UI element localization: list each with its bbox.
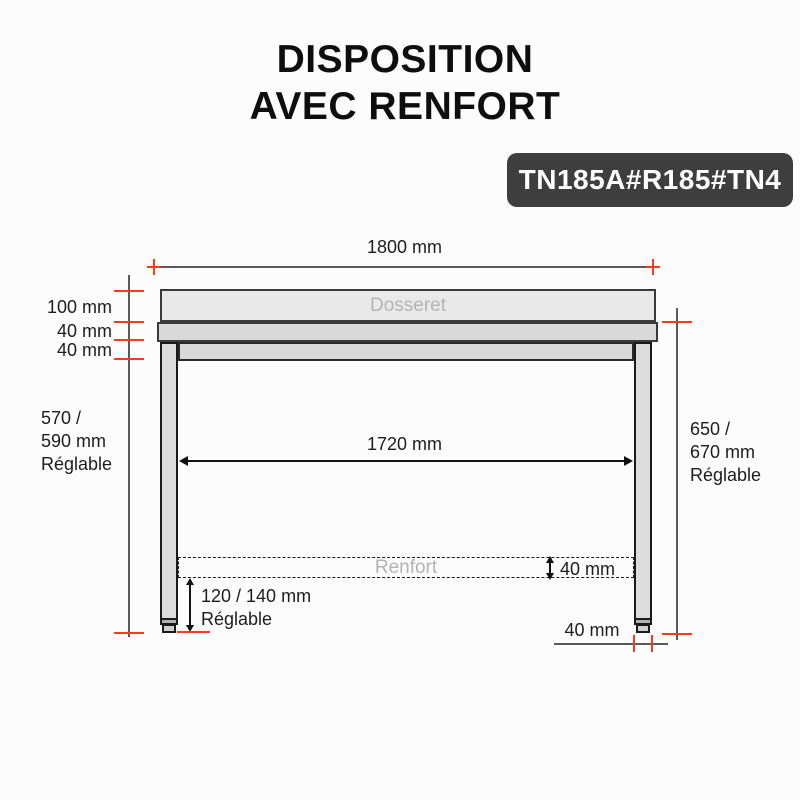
dim-left-clearance-line3: Réglable [41,453,112,476]
backsplash-panel: Dosseret [160,289,656,322]
dim-foot-adjust-line1: 120 / 140 mm [201,585,311,608]
dim-total-width-label: 1800 mm [153,236,656,258]
right-leg [634,342,652,620]
dim-tick [147,266,161,268]
left-leg [160,342,178,620]
frame-rail [178,342,634,361]
dim-reinforcement-thickness-label: 40 mm [560,558,615,580]
dim-tick [177,631,210,633]
dim-tick [114,290,144,292]
worktop-panel [157,322,658,342]
dim-tick [114,632,144,634]
dim-right-height-line1: 650 / [690,418,761,441]
page-title-line2: AVEC RENFORT [0,83,800,130]
dim-tick [633,635,635,652]
page-title-line1: DISPOSITION [0,36,800,83]
dim-right-height-label: 650 / 670 mm Réglable [690,418,761,487]
dim-left-line [128,275,130,637]
backsplash-label: Dosseret [370,295,446,317]
dim-left-clearance-label: 570 / 590 mm Réglable [41,407,112,476]
reinforcement-label: Renfort [375,557,437,579]
dim-foot-adjust-label: 120 / 140 mm Réglable [201,585,311,631]
dim-tick [651,635,653,652]
dim-foot-adjust-line2: Réglable [201,608,311,631]
arrow-up-icon [546,556,554,563]
arrow-up-icon [186,578,194,585]
dim-inner-width-label: 1720 mm [153,433,656,455]
product-code-badge: TN185A#R185#TN4 [507,153,793,207]
dim-tick [646,266,660,268]
dim-tick [114,358,144,360]
dim-total-width-line [150,266,657,268]
arrow-down-icon [546,573,554,580]
dim-left-clearance-line2: 590 mm [41,430,112,453]
dim-foot-adjust-arrow-line [189,583,191,627]
dim-tick [114,339,144,341]
dim-right-line [676,308,678,640]
dim-frame-thickness-label: 40 mm [20,339,112,361]
dim-leg-width-label: 40 mm [552,619,632,641]
dim-left-clearance-line1: 570 / [41,407,112,430]
page-title: DISPOSITION AVEC RENFORT [0,36,800,130]
dim-backsplash-height-label: 100 mm [20,296,112,318]
arrow-right-icon [624,456,633,466]
dim-tick [662,321,692,323]
right-foot [636,624,650,633]
arrow-left-icon [179,456,188,466]
dim-inner-width-arrow-line [185,460,627,462]
dim-tick [662,633,692,635]
left-foot [162,624,176,633]
dim-tick [114,321,144,323]
dim-right-height-line3: Réglable [690,464,761,487]
dim-right-height-line2: 670 mm [690,441,761,464]
product-code-label: TN185A#R185#TN4 [519,164,782,196]
